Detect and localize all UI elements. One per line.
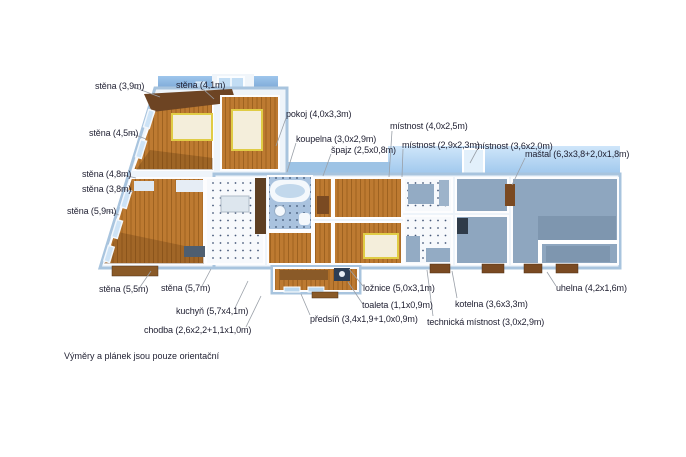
door-frame <box>284 287 300 292</box>
wall-label-stena-5-9: stěna (5,9m) <box>67 206 116 216</box>
room-mistnost-3-6 <box>456 178 508 212</box>
room-label-mistnost-2-9: místnost (2,9x2,3m) <box>402 140 480 150</box>
kitchen-counter <box>176 180 203 192</box>
boiler <box>457 218 468 234</box>
room-label-kotelna: kotelna (3,6x3,3m) <box>455 299 528 309</box>
room-koupelna <box>268 176 312 230</box>
room-label-spajz: špajz (2,5x0,8m) <box>331 145 396 155</box>
door <box>505 184 515 206</box>
wall-label-stena-5-5: stěna (5,5m) <box>99 284 148 294</box>
disclaimer-note: Výměry a plánek jsou pouze orientační <box>64 351 219 361</box>
room-technicka-mistnost <box>404 216 452 264</box>
wall-label-stena-5-7: stěna (5,7m) <box>161 283 210 293</box>
room-chodba <box>206 178 266 264</box>
room-label-technicka-mistnost: technická místnost (3,0x2,9m) <box>427 317 544 327</box>
room-loznice <box>334 222 402 264</box>
toilet <box>299 213 310 225</box>
room-label-loznice: ložnice (5,0x3,1m) <box>363 283 435 293</box>
wall-label-stena-4-5: stěna (4,5m) <box>89 128 138 138</box>
wall-label-stena-3-8: stěna (3,8m) <box>82 184 131 194</box>
room-label-kuchyn: kuchyň (5,7x4,1m) <box>176 306 248 316</box>
room-label-toaleta: toaleta (1,1x0,9m) <box>362 300 433 310</box>
room-label-mistnost-4-0: místnost (4,0x2,5m) <box>390 121 468 131</box>
door <box>317 196 329 214</box>
room-kotelna <box>456 216 508 264</box>
room-pokoj <box>221 96 279 170</box>
wall-label-stena-4-1: stěna (4,1m) <box>176 80 225 90</box>
bed <box>232 110 262 150</box>
room-predsin <box>274 268 358 292</box>
room-label-uhelna: uhelna (4,2x1,6m) <box>556 283 627 293</box>
door-frame <box>308 287 324 292</box>
room-mistnost-2-9 <box>404 178 452 212</box>
floor-plan-page: stěna (3,9m) stěna (4,1m) stěna (4,5m) s… <box>0 0 686 457</box>
room-label-mastal: maštal (6,3x3,8+2,0x1,8m) <box>525 149 629 159</box>
bench <box>280 270 328 280</box>
bed <box>172 114 212 140</box>
room-label-koupelna: koupelna (3,0x2,9m) <box>296 134 376 144</box>
toilet <box>339 271 345 277</box>
kitchen-counter <box>134 181 154 191</box>
wall-label-stena-4-8: stěna (4,8m) <box>82 169 131 179</box>
room-label-chodba: chodba (2,6x2,2+1,1x1,0m) <box>144 325 251 335</box>
floor-plan-rendering <box>0 0 686 457</box>
kitchen-appliance <box>184 246 206 257</box>
chimney <box>255 178 266 234</box>
room-label-predsin: předsíň (3,4x1,9+1,0x0,9m) <box>310 314 418 324</box>
room-uhelna <box>538 240 618 264</box>
sink <box>275 206 286 217</box>
bed <box>364 234 398 258</box>
room-label-pokoj: pokoj (4,0x3,3m) <box>286 109 351 119</box>
wall-label-stena-3-9: stěna (3,9m) <box>95 81 144 91</box>
table <box>221 196 249 212</box>
platform <box>538 216 616 240</box>
room-mistnost-4-0 <box>334 178 402 218</box>
